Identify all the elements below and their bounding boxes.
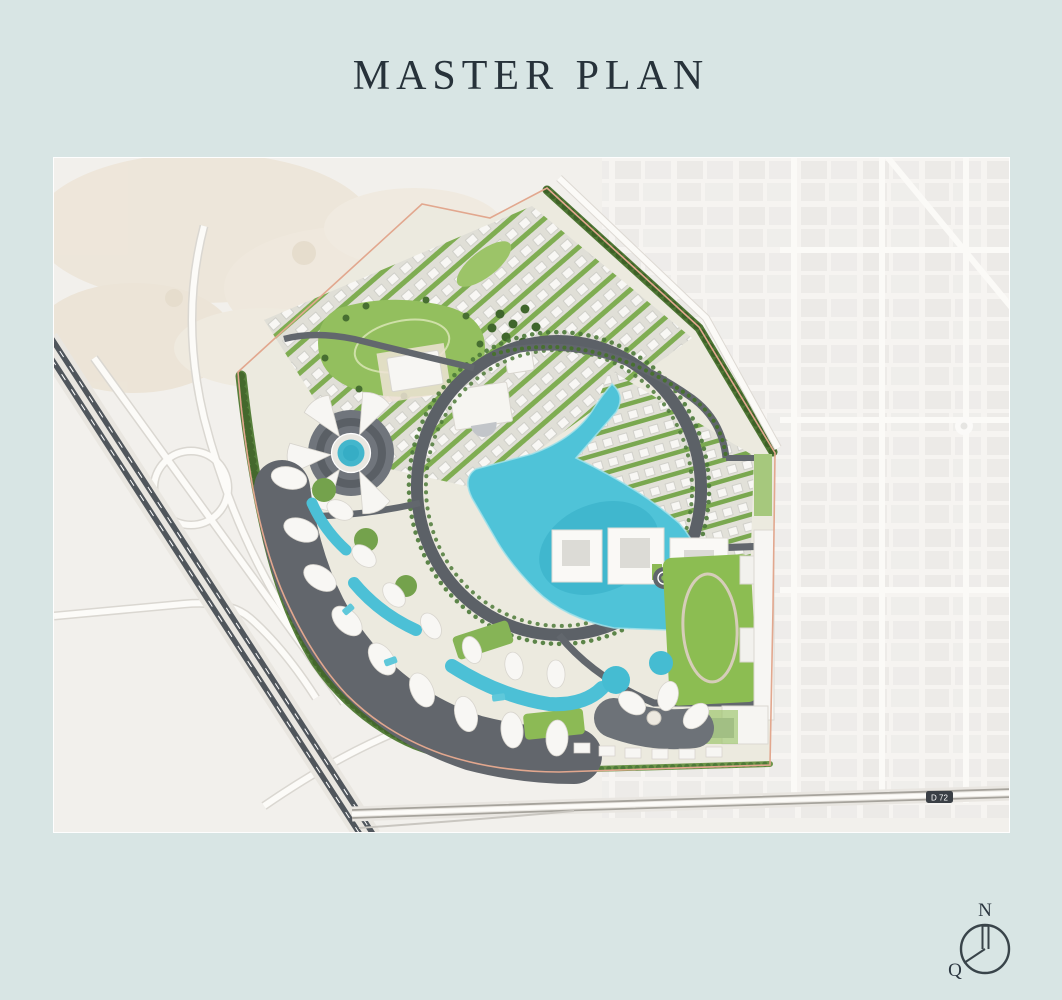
round-pool-1 xyxy=(602,666,630,694)
compass-qibla-label: Q xyxy=(948,960,962,981)
dome-building xyxy=(647,711,661,725)
master-plan-map: D 72 xyxy=(53,157,1010,833)
compass-icon: N Q xyxy=(925,887,1035,992)
round-pool-2 xyxy=(649,651,673,675)
road-badge: D 72 xyxy=(926,791,953,803)
road-badge-label: D 72 xyxy=(931,794,948,803)
master-plan-page: { "page": { "title": "MASTER PLAN", "bac… xyxy=(0,0,1062,1000)
compass-north-label: N xyxy=(978,900,992,921)
page-title: MASTER PLAN xyxy=(0,52,1062,100)
